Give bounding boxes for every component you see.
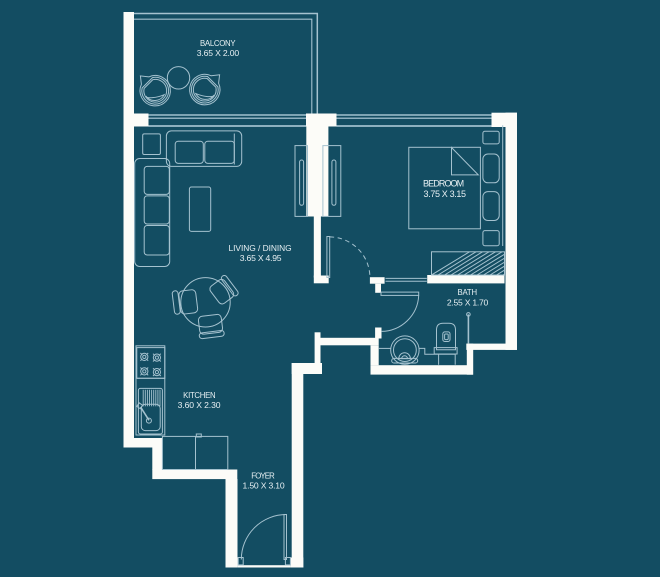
svg-text:BEDROOM: BEDROOM — [423, 178, 465, 188]
svg-text:1.50 X 3.10: 1.50 X 3.10 — [243, 481, 286, 491]
svg-text:3.65 X 4.95: 3.65 X 4.95 — [240, 253, 283, 263]
svg-text:BATH: BATH — [457, 288, 478, 297]
svg-text:3.75 X 3.15: 3.75 X 3.15 — [424, 189, 467, 199]
svg-text:2.55 X 1.70: 2.55 X 1.70 — [447, 298, 489, 308]
svg-text:3.65 X 2.00: 3.65 X 2.00 — [197, 48, 240, 58]
svg-text:BALCONY: BALCONY — [200, 39, 236, 48]
svg-text:FOYER: FOYER — [251, 472, 275, 481]
svg-text:3.60 X 2.30: 3.60 X 2.30 — [178, 400, 222, 410]
svg-text:LIVING / DINING: LIVING / DINING — [229, 243, 293, 253]
svg-text:KITCHEN: KITCHEN — [183, 391, 216, 400]
